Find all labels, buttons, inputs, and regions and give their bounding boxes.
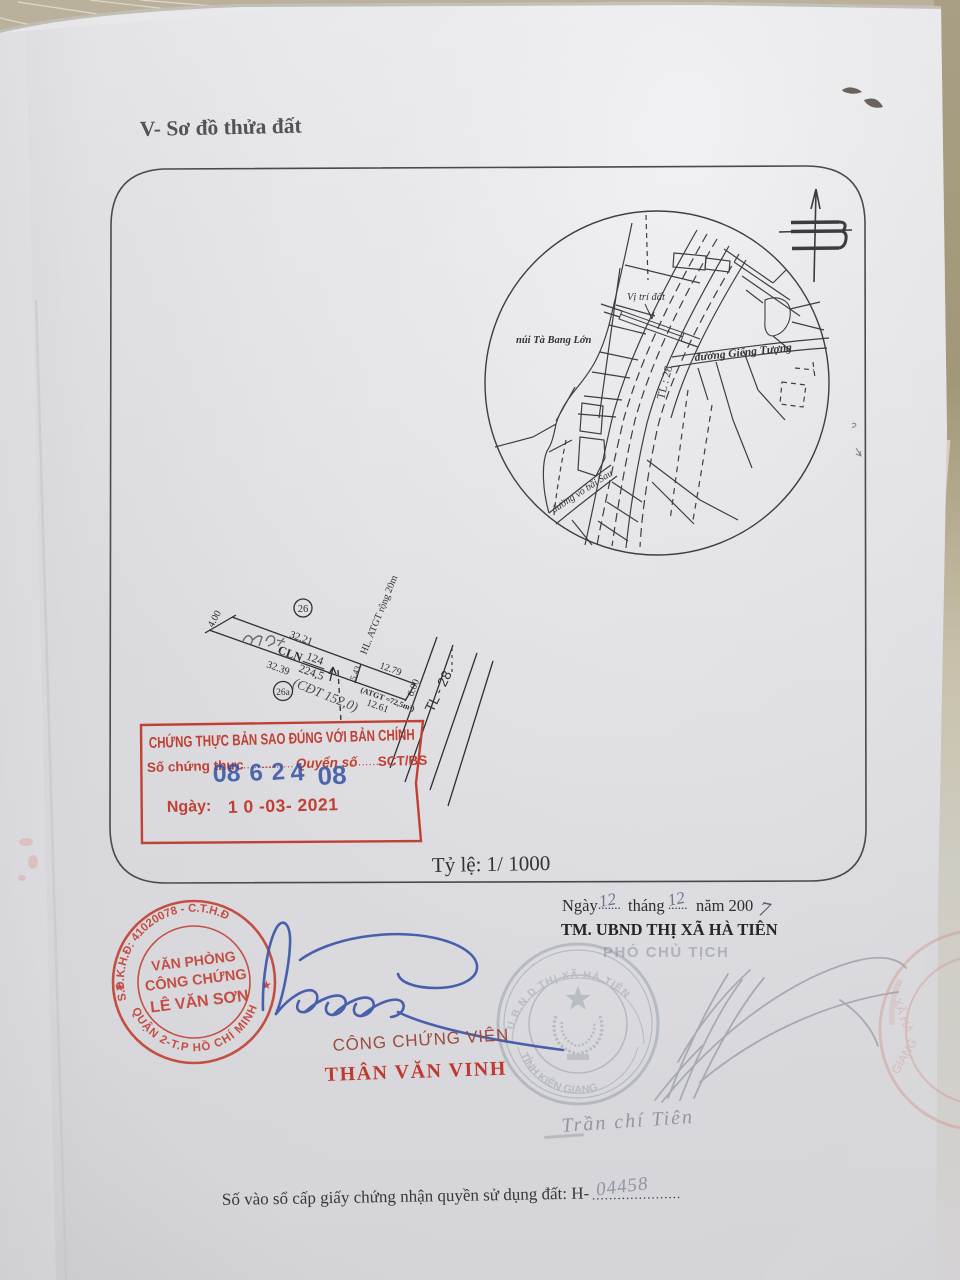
- svg-text:năm 200: năm 200: [696, 896, 753, 915]
- svg-text:08: 08: [317, 760, 347, 791]
- svg-text:Vị trí đất: Vị trí đất: [627, 292, 666, 303]
- svg-text:1 0 -03- 2021: 1 0 -03- 2021: [228, 794, 339, 817]
- svg-text:V- Sơ đồ thửa đất: V- Sơ đồ thửa đất: [140, 114, 303, 141]
- svg-text:2: 2: [271, 758, 286, 786]
- svg-text:Ngày: Ngày: [562, 896, 598, 915]
- svg-text:08: 08: [212, 759, 241, 788]
- svg-text:tháng: tháng: [628, 896, 665, 915]
- svg-text:SCT/BS: SCT/BS: [378, 753, 428, 769]
- svg-text:26a: 26a: [276, 688, 291, 698]
- svg-text:Tỷ lệ: 1/ 1000: Tỷ lệ: 1/ 1000: [432, 851, 551, 877]
- svg-text:TM. UBND THỊ XÃ HÀ TIÊN: TM. UBND THỊ XÃ HÀ TIÊN: [561, 920, 778, 939]
- svg-text:Ngày:: Ngày:: [167, 798, 212, 816]
- svg-text:★: ★: [114, 980, 125, 994]
- svg-text:26: 26: [298, 604, 309, 615]
- svg-text:núi Tà Bang Lớn: núi Tà Bang Lớn: [516, 335, 592, 346]
- svg-text:6: 6: [249, 759, 264, 787]
- svg-text:4: 4: [289, 758, 305, 787]
